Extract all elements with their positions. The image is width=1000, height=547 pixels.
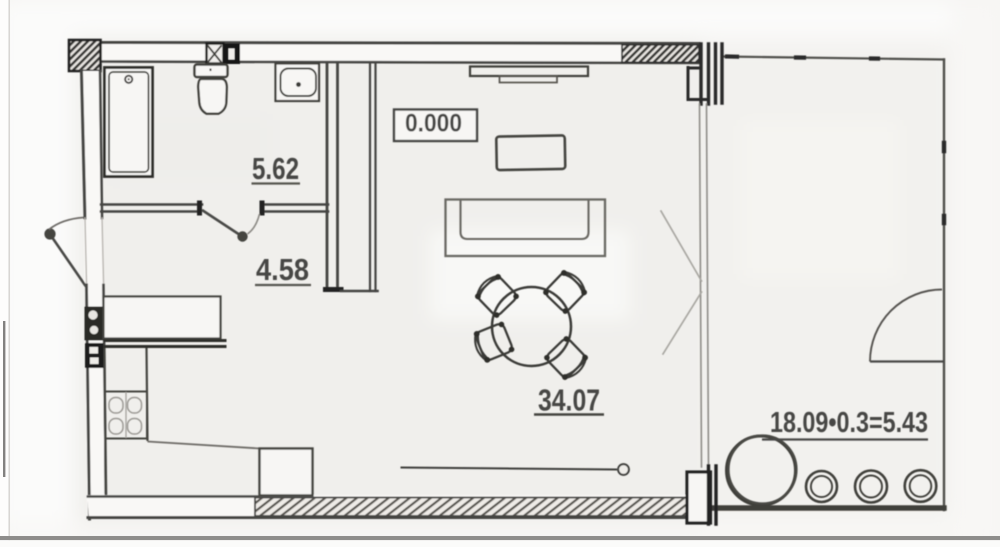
svg-text:34.07: 34.07 <box>538 383 600 418</box>
svg-text:18.09•0.3=5.43: 18.09•0.3=5.43 <box>770 407 928 439</box>
svg-text:0.000: 0.000 <box>405 110 462 138</box>
svg-text:5.62: 5.62 <box>252 151 299 186</box>
svg-text:4.58: 4.58 <box>256 252 309 287</box>
